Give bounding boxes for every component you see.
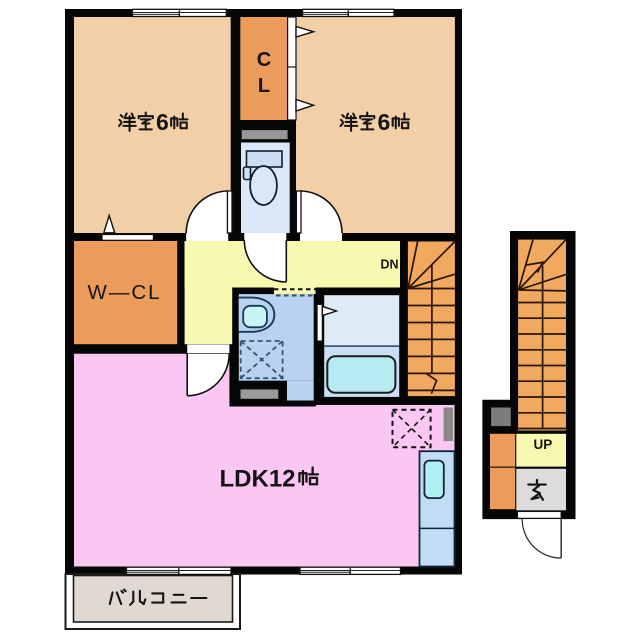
svg-text:W—CL: W—CL: [88, 281, 162, 304]
svg-text:C: C: [257, 49, 271, 71]
svg-text:UP: UP: [534, 437, 553, 452]
svg-text:6: 6: [156, 109, 169, 135]
svg-text:6: 6: [378, 109, 391, 135]
svg-text:DN: DN: [381, 258, 399, 272]
svg-text:L: L: [258, 75, 270, 97]
svg-text:LDK12: LDK12: [220, 466, 296, 493]
